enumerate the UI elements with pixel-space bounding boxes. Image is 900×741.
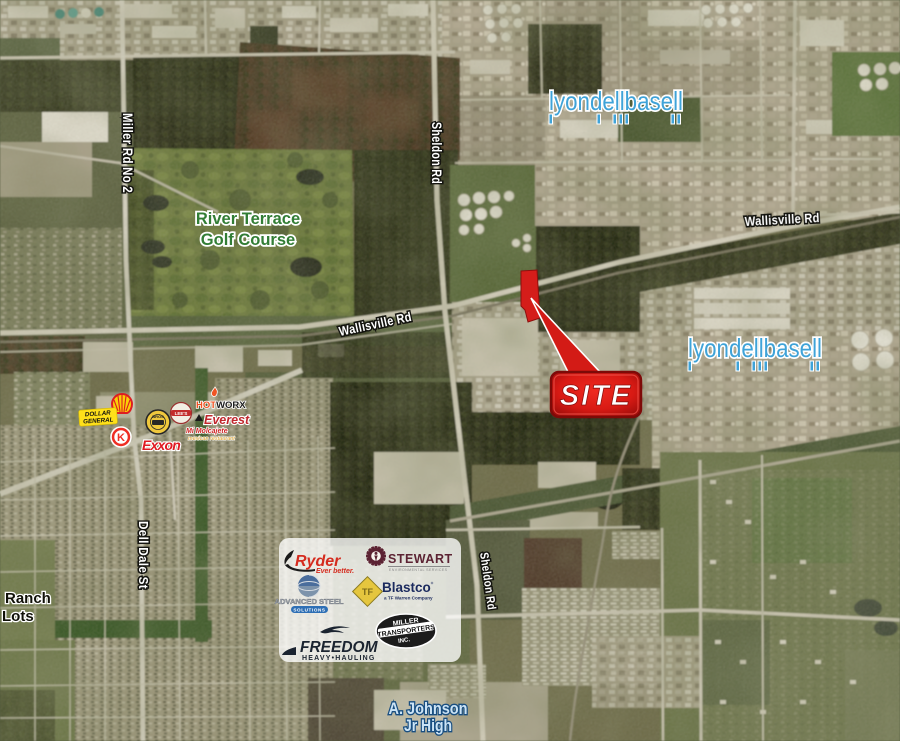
svg-text:Golf Course: Golf Course: [201, 231, 295, 249]
svg-text:lyondellbasell: lyondellbasell: [688, 333, 822, 363]
svg-text:Sheldon Rd: Sheldon Rd: [429, 122, 444, 184]
svg-text:Jr High: Jr High: [404, 717, 452, 735]
svg-text:A. Johnson: A. Johnson: [389, 700, 468, 718]
svg-text:Exxon: Exxon: [142, 437, 180, 453]
svg-text:Ranch: Ranch: [5, 590, 51, 607]
svg-text:Miller Rd No 2: Miller Rd No 2: [120, 113, 135, 193]
svg-text:Lots: Lots: [2, 608, 34, 625]
svg-text:K: K: [117, 432, 125, 444]
svg-text:LEE'S: LEE'S: [175, 411, 188, 416]
svg-text:BROS: BROS: [152, 414, 164, 419]
svg-text:Everest: Everest: [204, 413, 250, 427]
svg-text:STEWART: STEWART: [388, 552, 453, 566]
svg-text:a TF Warren Company: a TF Warren Company: [384, 596, 433, 601]
svg-text:Mi Molcajete: Mi Molcajete: [186, 428, 228, 435]
svg-text:ENVIRONMENTAL SERVICES: ENVIRONMENTAL SERVICES: [389, 568, 448, 572]
svg-text:HOTWORX: HOTWORX: [196, 400, 246, 411]
svg-text:Dell Dale St: Dell Dale St: [136, 521, 151, 589]
svg-text:HEAVY•HAULING: HEAVY•HAULING: [302, 655, 376, 662]
svg-text:Ever better.: Ever better.: [316, 568, 354, 575]
svg-text:Blastco: Blastco: [382, 580, 431, 595]
svg-text:lyondellbasell: lyondellbasell: [549, 86, 683, 116]
svg-text:mexican restaurant: mexican restaurant: [188, 436, 235, 442]
svg-text:SITE: SITE: [560, 380, 632, 412]
svg-text:TF: TF: [362, 587, 373, 597]
svg-text:SOLUTIONS: SOLUTIONS: [293, 607, 325, 612]
svg-text:FREEDOM: FREEDOM: [300, 639, 379, 656]
svg-text:River Terrace: River Terrace: [196, 210, 300, 228]
svg-text:ADVANCED STEEL: ADVANCED STEEL: [274, 597, 343, 606]
